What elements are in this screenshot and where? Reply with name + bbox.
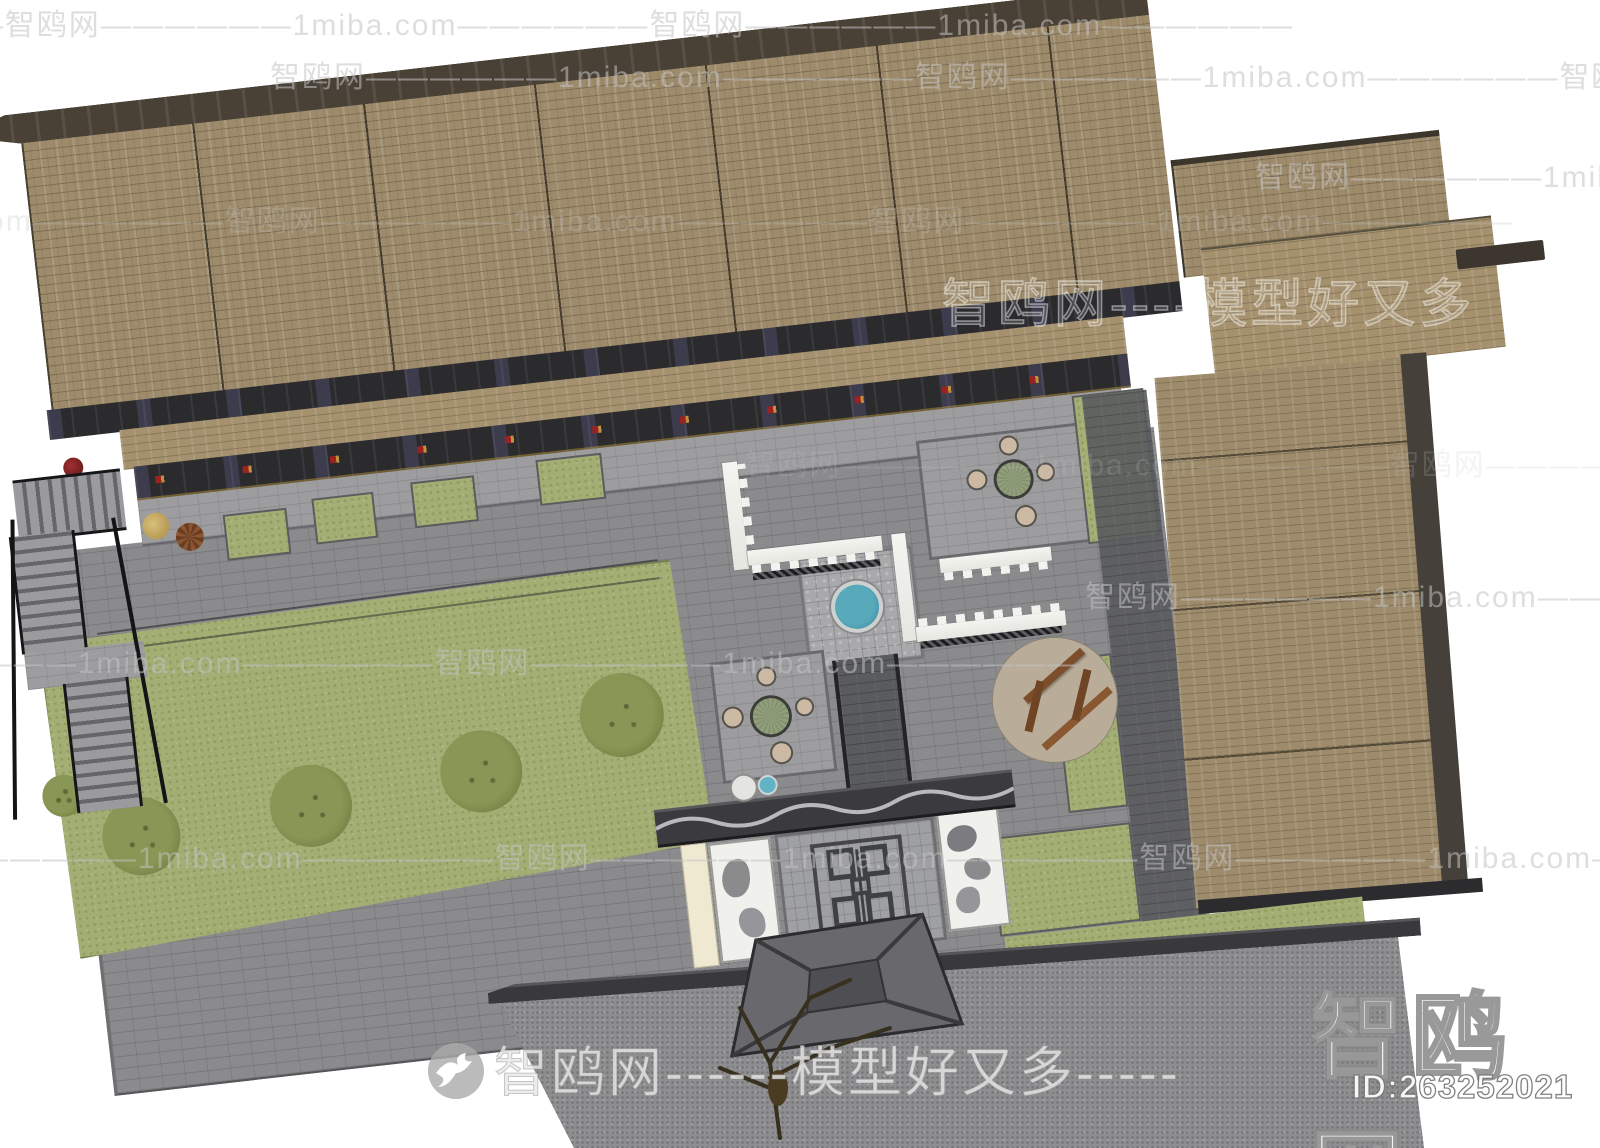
watermark-large-bottom: 智鸥网------模型好又多----- (494, 1028, 1181, 1107)
lawn-patch (225, 510, 289, 559)
model-preview-image: 智鸥网——————1miba.com——————智鸥网——————1miba.c… (0, 0, 1600, 1148)
watermark-row: 智鸥网——————1miba.com——————智鸥网——————1miba.c… (0, 0, 1294, 44)
site-logo: 智鸥网 (1310, 962, 1600, 1148)
watermark-row: 智鸥网——————1miba.com——————智鸥网——————1miba.c… (0, 638, 1079, 682)
watermark-row: 智鸥网——————1miba.com——————智鸥网——————1miba.c… (1255, 152, 1600, 196)
watermark-row: 智鸥网——————1miba.com——————智鸥网——————1miba.c… (0, 833, 1600, 877)
gull-icon (428, 1043, 484, 1099)
watermark-row: 智鸥网——————1miba.com——————智鸥网——————1miba.c… (745, 440, 1600, 484)
watermark-row: 智鸥网——————1miba.com——————智鸥网——————1miba.c… (270, 52, 1600, 96)
watermark-row: 智鸥网——————1miba.com——————智鸥网——————1miba.c… (1085, 572, 1600, 616)
watermark-row: 智鸥网——————1miba.com——————智鸥网——————1miba.c… (0, 196, 1514, 240)
model-id: ID:263252021 (1352, 1068, 1573, 1106)
lawn-patch (314, 494, 376, 542)
watermark-bird-logo (428, 1043, 484, 1099)
watermark-large-top: 智鸥网----模型好又多 (942, 262, 1475, 337)
lawn-patch (412, 478, 476, 527)
stair-flight-middle (9, 530, 88, 655)
lawn-patch (538, 455, 604, 504)
